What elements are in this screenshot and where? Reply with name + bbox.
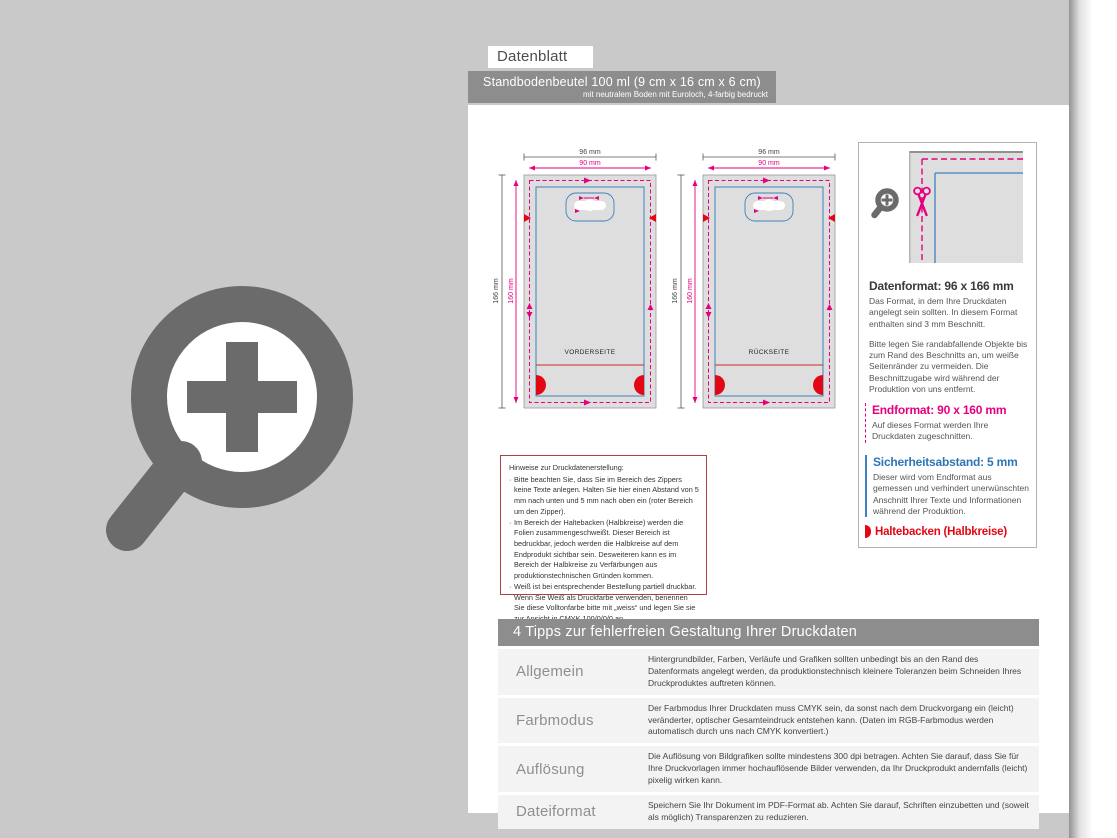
format-info-panel: Datenformat: 96 x 166 mm Das Format, in … xyxy=(858,142,1037,548)
zoom-plus-icon[interactable] xyxy=(95,272,395,572)
datenformat-text-2: Bitte legen Sie randabfallende Objekte b… xyxy=(869,339,1029,395)
endformat-title: Endformat: 90 x 160 mm xyxy=(872,403,1029,417)
pouch-drawing-front: 96 mm 90 mm 166 mm 160 mm xyxy=(488,143,668,418)
corner-detail-zoom xyxy=(909,151,1023,263)
datenformat-section: Datenformat: 96 x 166 mm Das Format, in … xyxy=(869,279,1029,395)
front-side-label: VORDERSEITE xyxy=(565,349,616,356)
half-circle-icon xyxy=(865,525,871,538)
endformat-section: Endformat: 90 x 160 mm Auf dieses Format… xyxy=(865,403,1029,443)
product-header-bar: Standbodenbeutel 100 ml (9 cm x 16 cm x … xyxy=(468,71,776,103)
tip-text: Die Auflösung von Bildgrafiken sollte mi… xyxy=(648,746,1039,792)
dim-label-inner-height: 160 mm xyxy=(508,278,515,303)
endformat-text: Auf dieses Format werden Ihre Druckdaten… xyxy=(872,420,1029,443)
tip-label: Dateiformat xyxy=(498,803,648,820)
dim-label-outer-height: 166 mm xyxy=(672,278,679,303)
product-name: Standbodenbeutel 100 ml (9 cm x 16 cm x … xyxy=(468,75,776,89)
sicherheitsabstand-title: Sicherheitsabstand: 5 mm xyxy=(873,455,1029,469)
tip-text: Der Farbmodus Ihrer Druckdaten muss CMYK… xyxy=(648,698,1039,744)
tips-header: 4 Tipps zur fehlerfreien Gestaltung Ihre… xyxy=(498,619,1039,646)
page-title: Datenblatt xyxy=(488,46,593,68)
haltebacken-label: Haltebacken (Halbkreise) xyxy=(875,526,1007,538)
tip-label: Farbmodus xyxy=(498,712,648,729)
hinweise-box: Hinweise zur Druckdatenerstellung: Bitte… xyxy=(500,455,707,595)
dim-label-inner-width: 90 mm xyxy=(758,160,780,167)
dim-label-inner-height: 160 mm xyxy=(687,278,694,303)
table-row: Allgemein Hintergrundbilder, Farben, Ver… xyxy=(498,649,1039,695)
table-row: Auflösung Die Auflösung von Bildgrafiken… xyxy=(498,746,1039,792)
pouch-drawing-back: 96 mm 90 mm 166 mm 160 mm xyxy=(667,143,847,418)
table-row: Farbmodus Der Farbmodus Ihrer Druckdaten… xyxy=(498,698,1039,744)
tip-label: Auflösung xyxy=(498,761,648,778)
hinweise-title: Hinweise zur Druckdatenerstellung: xyxy=(509,463,699,474)
hinweise-list: Bitte beachten Sie, dass Sie im Bereich … xyxy=(509,475,699,625)
tip-text: Hintergrundbilder, Farben, Verläufe und … xyxy=(648,649,1039,695)
tip-label: Allgemein xyxy=(498,663,648,680)
dim-label-outer-width: 96 mm xyxy=(758,149,780,156)
hinweise-item: Im Bereich der Haltebacken (Halbkreise) … xyxy=(509,518,699,582)
tip-text: Speichern Sie Ihr Dokument im PDF-Format… xyxy=(648,795,1039,829)
table-row: Dateiformat Speichern Sie Ihr Dokument i… xyxy=(498,795,1039,829)
page-title-text: Datenblatt xyxy=(497,48,567,65)
euroloch xyxy=(566,193,614,221)
back-side-label: RÜCKSEITE xyxy=(749,348,790,356)
datenformat-text-1: Das Format, in dem Ihre Druckdaten angel… xyxy=(869,296,1029,330)
euroloch xyxy=(745,193,793,221)
product-description: mit neutralem Boden mit Euroloch, 4-farb… xyxy=(468,90,776,99)
hinweise-item: Bitte beachten Sie, dass Sie im Bereich … xyxy=(509,475,699,518)
sicherheitsabstand-text: Dieser wird vom Endformat aus gemessen u… xyxy=(873,472,1029,517)
datasheet-viewer: Datenblatt Standbodenbeutel 100 ml (9 cm… xyxy=(0,0,1117,838)
dim-label-outer-height: 166 mm xyxy=(493,278,500,303)
dim-label-outer-width: 96 mm xyxy=(579,149,601,156)
page-edge-shadow xyxy=(1069,0,1093,838)
sicherheitsabstand-section: Sicherheitsabstand: 5 mm Dieser wird vom… xyxy=(865,455,1029,517)
magnifier-plus-icon xyxy=(870,187,906,227)
tips-table: Allgemein Hintergrundbilder, Farben, Ver… xyxy=(498,646,1039,829)
dim-label-inner-width: 90 mm xyxy=(579,160,601,167)
haltebacken-legend: Haltebacken (Halbkreise) xyxy=(865,525,1007,538)
datenformat-title: Datenformat: 96 x 166 mm xyxy=(869,279,1029,293)
